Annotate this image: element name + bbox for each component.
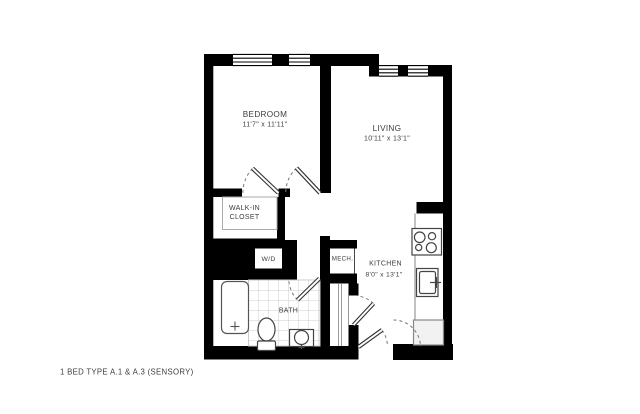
stove-icon [412,229,442,256]
entry-door [359,320,421,347]
wall-pantry-stub-lower [349,325,359,347]
bedroom-door [286,168,320,193]
floor-plan-page: BEDROOM 11'7" x 11'11" LIVING 10'11" x 1… [0,0,640,414]
window-living-1 [379,65,398,77]
kitchen-label: KITCHEN [369,261,402,268]
bathroom-sink-icon [290,330,314,350]
entry-door-swing-arc [382,330,388,347]
window-bedroom-2 [289,54,310,67]
pantry-shelves [339,284,349,346]
closet-door [243,168,279,193]
pantry-door-swing-arc [357,296,374,304]
floor-plan-title: 1 BED TYPE A.1 & A.3 (SENSORY) [60,368,194,377]
wall-bedroom-bottom-b [279,189,291,198]
wall-mech-bottom [330,274,357,284]
wall-bottom-left [204,346,359,360]
wall-right [443,65,452,360]
kitchen-dimensions: 8'0" x 13'1" [365,272,402,279]
wall-laundry-block [204,247,297,280]
wall-bedroom-bottom-a [204,189,242,198]
living-dimensions: 10'11" x 13'1" [364,136,410,143]
wall-kitchen-stub [417,202,445,214]
wall-closet-bottom [204,239,285,248]
window-bedroom-1 [233,54,272,67]
toilet-icon [258,318,276,351]
bedroom-dimensions: 11'7" x 11'11" [243,122,288,129]
walk-in-closet-label-line2: CLOSET [230,214,260,221]
window-living-2 [408,65,428,77]
walk-in-closet-label-line1: WALK-IN [229,205,260,212]
wall-laundry-block-upper [285,240,297,247]
living-label: LIVING [373,124,402,133]
kitchen-sink-icon [417,269,442,297]
bathtub-icon [222,282,249,334]
wall-left [204,54,213,360]
wall-bedroom-living-divider [320,54,331,193]
washer-dryer-label: W/D [261,256,275,263]
wall-mech-top [330,240,357,249]
pantry-door [354,296,374,325]
closet-door-swing-arc [243,168,253,193]
mech-label: MECH. [332,256,353,263]
kitchen-fixtures [412,214,444,346]
floor-plan-drawing: BEDROOM 11'7" x 11'11" LIVING 10'11" x 1… [0,0,640,414]
bedroom-label: BEDROOM [243,110,287,119]
bath-label: BATH [279,308,298,315]
refrigerator-icon [414,320,444,345]
wall-bath-mech-column [320,236,330,347]
wall-pantry-stub-upper [349,284,359,296]
wall-bottom-right [393,344,453,360]
